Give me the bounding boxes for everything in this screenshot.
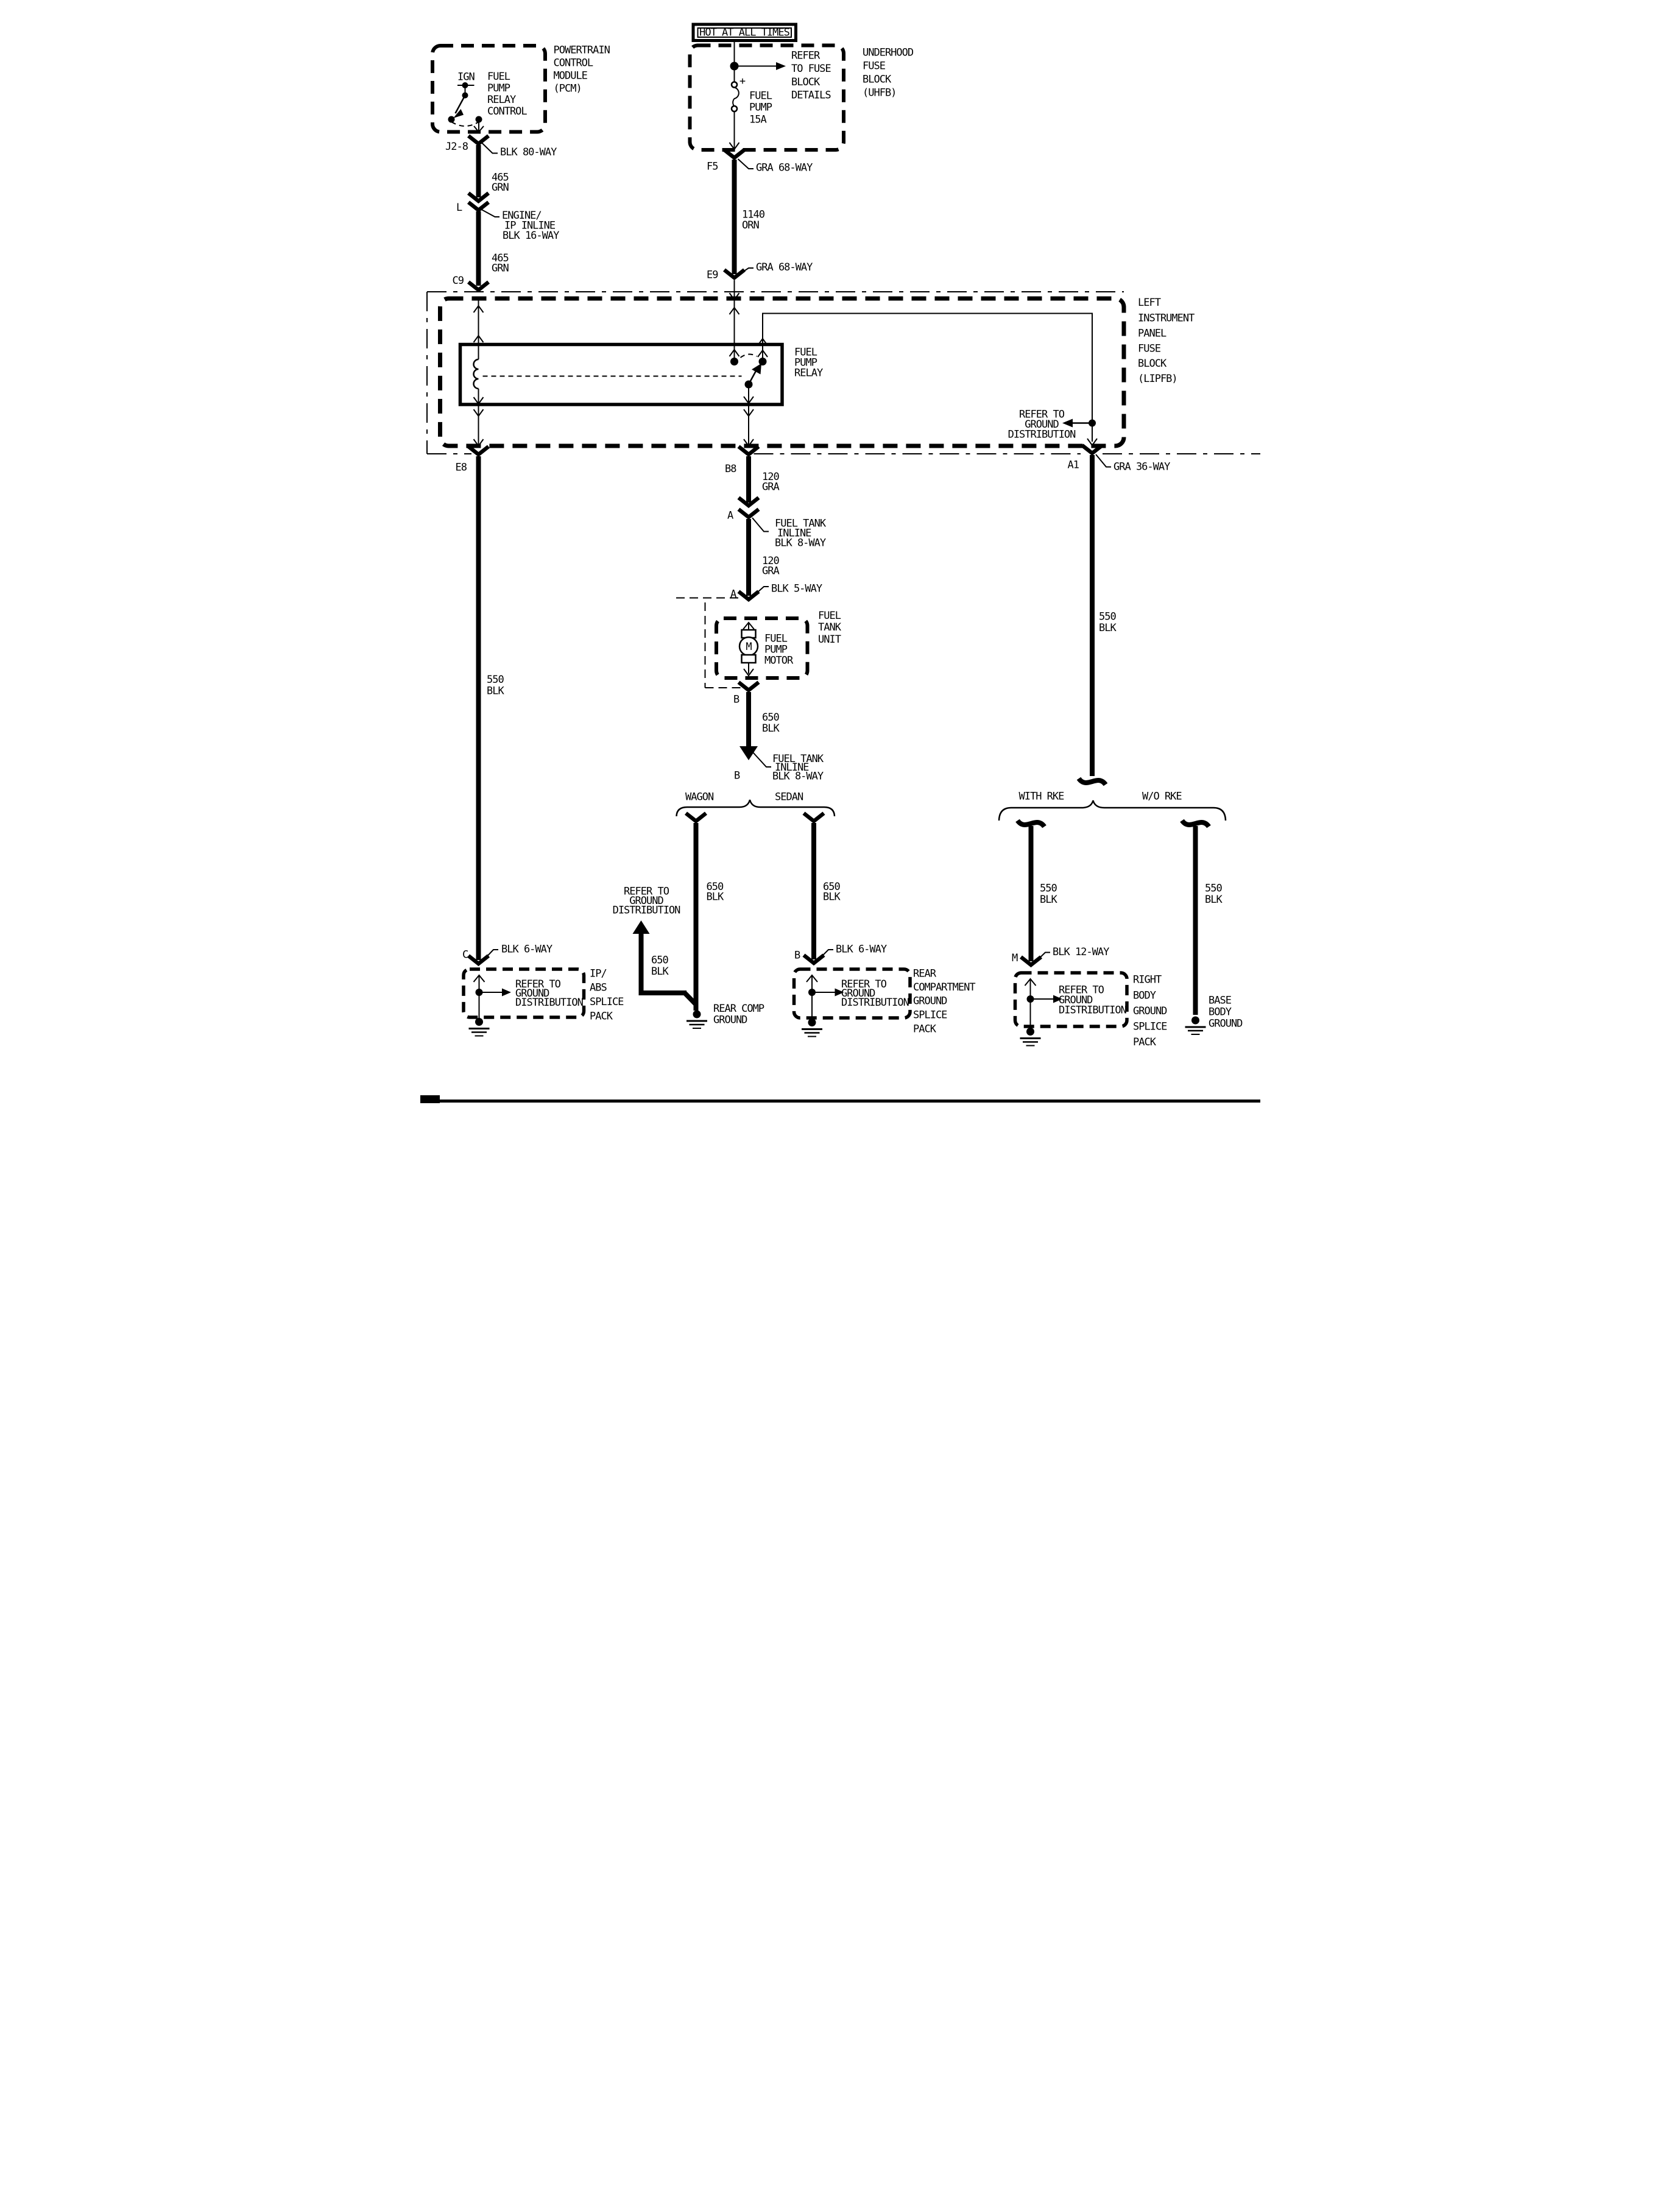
wire-label: GRN [492,263,509,275]
wire-label: ORN [742,219,759,231]
ip-abs-splice-pack: REFER TO GROUND DISTRIBUTION IP/ ABS SPL… [464,968,624,1036]
wiring-diagram-page: HOT AT ALL TIMES POWERTRAIN CONTROL MODU… [420,0,1260,1105]
connector-chevron [803,813,824,821]
wire-label: BLK [651,966,669,978]
splice-pack-label: COMPARTMENT [913,981,975,994]
refer-text: DISTRIBUTION [612,905,680,917]
lipfb-label: FUSE [1138,343,1161,355]
wire-label: BLK [1205,894,1223,906]
motor-label: PUMP [764,644,788,656]
splice-pack-label: BODY [1133,990,1156,1002]
pump-ground-wire: B 650 BLK B FUEL TANK INLINE BLK 8-WAY [733,682,824,783]
sedan-label: SEDAN [775,791,803,803]
pcm-label: MODULE [553,70,587,82]
splice-pack-label: PACK [590,1011,613,1023]
pin-a: A [730,588,736,601]
uhfb-label: BLOCK [863,74,892,86]
sedan-branch: 650 BLK B BLK 6-WAY [794,813,887,963]
fuel-tank-unit: FUEL TANK UNIT M FUEL PUMP MOTOR [716,610,842,678]
wire-label: GRN [492,182,509,194]
wo-rke-branch: 550 BLK BASE BODY GROUND [1182,821,1243,1034]
wire-label: 550 [1099,611,1116,623]
wire-end-arrow-icon [739,746,758,760]
wire-break-icon [1079,778,1106,785]
splice-pack-label: PACK [913,1023,937,1036]
lipfb-label: BLOCK [1138,358,1167,370]
wire-label: BLK [487,685,504,697]
page-edge [420,1095,1260,1103]
inline-label: BLK 16-WAY [503,230,559,242]
connector-chevron [738,682,758,690]
uhfb-block: UNDERHOOD FUSE BLOCK (UHFB) REFER TO FUS… [690,41,913,150]
wagon-label: WAGON [685,791,714,803]
pin-j2-8: J2-8 [445,141,468,153]
splice-pack-label: IP/ [590,968,607,980]
splice-pack-label: ABS [590,982,607,994]
a1-ground-wire: A1 GRA 36-WAY 550 BLK [1067,445,1170,785]
rear-comp-splice-pack: REFER TO GROUND DISTRIBUTION REAR COMPAR… [794,968,975,1037]
pin-e8: E8 [455,462,467,474]
uhfb-refer-text: DETAILS [791,90,831,102]
wire-break-icon [1182,821,1209,827]
pin-c: C [462,949,468,961]
pin-b: B [734,770,740,782]
hot-banner-text: HOT AT ALL TIMES [699,27,790,39]
splice-pack-label: REAR [913,968,937,980]
ground-icon [686,1011,707,1029]
connector-chevron [468,136,489,144]
wire-label: 1140 [742,209,765,221]
connector-label: GRA 36-WAY [1114,461,1170,473]
lipfb-label: LEFT [1138,297,1161,309]
wire-label: GRA [762,481,779,493]
ground-label: BODY [1209,1006,1232,1019]
fuse-label: FUEL [749,90,772,102]
refer-fuse-arrow-icon [776,62,786,70]
wire-label: GRA [762,565,779,577]
wire-label: 650 [762,711,779,724]
lipfb-label: PANEL [1138,328,1166,340]
connector-label: BLK 5-WAY [771,583,822,595]
fuel-tank-unit-box [716,618,808,678]
splice-pack-label: GROUND [913,995,947,1008]
ground-icon [802,1019,822,1037]
lipfb-refer-text: DISTRIBUTION [1008,429,1076,441]
lipfb-block: LEFT INSTRUMENT PANEL FUSE BLOCK (LIPFB)… [440,280,1195,446]
rke-split: WITH RKE W/O RKE [999,791,1226,821]
wagon-branch: 650 BLK REFER TO GROUND DISTRIBUTION 650… [612,813,764,1028]
pin-f5: F5 [707,161,718,173]
relay-label: RELAY [794,367,823,380]
body-style-split: WAGON SEDAN [676,791,835,817]
pcm-control-label: CONTROL [487,105,527,118]
uhfb-refer-text: TO FUSE [791,63,831,75]
tank-label: TANK [818,621,842,634]
splice-pack-label: SPLICE [590,996,624,1008]
fuse-label: PUMP [749,102,772,114]
pcm-control-label: FUEL [487,71,510,83]
connector-label: BLK 6-WAY [501,944,552,956]
refer-text: DISTRIBUTION [515,997,584,1009]
fuse-label: 15A [749,114,766,126]
pcm-label: POWERTRAIN [553,44,610,57]
pin-c9: C9 [452,275,464,287]
pcm-switch-icon [448,82,484,132]
motor-letter: M [746,641,752,653]
section-lines [427,292,1260,688]
wire-break-icon [1017,821,1044,827]
with-rke-label: WITH RKE [1018,791,1064,803]
e8-ground-wire: E8 550 BLK C BLK 6-WAY [455,447,552,964]
lipfb-label: (LIPFB) [1138,373,1177,385]
wire-label: BLK [1099,622,1117,634]
wo-rke-label: W/O RKE [1142,791,1182,803]
with-rke-branch: 550 BLK M BLK 12-WAY REFER TO GROUND DIS… [1012,821,1167,1048]
wire-label: BLK [762,722,780,735]
refer-text: DISTRIBUTION [841,997,909,1009]
uhfb-label: FUSE [863,60,886,72]
wire-label: 550 [487,674,504,686]
connector-chevron [686,813,706,821]
ground-label: REAR COMP [713,1003,764,1015]
pcm-feed-wire: J2-8 BLK 80-WAY 465 GRN L ENGINE/ IP INL… [445,136,559,290]
lipfb-label: INSTRUMENT [1138,312,1195,325]
inline-label: BLK 8-WAY [775,537,826,549]
pcm-control-label: PUMP [487,82,510,94]
connector-label: BLK 12-WAY [1053,946,1109,958]
fuel-pump-wiring-diagram: HOT AT ALL TIMES POWERTRAIN CONTROL MODU… [420,0,1260,1105]
splice-pack-label: PACK [1133,1036,1157,1048]
ground-label: BASE [1209,995,1232,1007]
fuel-pump-feed-circuit: B8 120 GRA A FUEL TANK INLINE BLK 8-WAY … [725,447,827,601]
pin-a1: A1 [1067,459,1079,471]
uhfb-label: UNDERHOOD [863,47,914,59]
splice-pack-label: RIGHT [1133,974,1162,986]
ground-label: GROUND [713,1014,747,1026]
fuse-plus: + [739,76,745,88]
splice-pack-label: SPLICE [1133,1021,1167,1033]
connector-label: BLK 80-WAY [500,146,557,158]
wire-label: BLK [823,891,841,903]
tank-label: FUEL [818,610,841,622]
tank-label: UNIT [818,634,841,646]
motor-label: FUEL [764,633,788,645]
uhfb-refer-text: REFER [791,50,821,62]
pcm-module: POWERTRAIN CONTROL MODULE (PCM) IGN FUEL… [432,44,610,132]
wire-label: BLK [706,891,724,903]
ground-label: GROUND [1209,1018,1243,1030]
pcm-label: (PCM) [553,83,581,95]
pin-a: A [727,510,733,522]
split-brace-icon [999,800,1226,821]
hot-banner: HOT AT ALL TIMES [693,24,796,41]
splice-pack-label: SPLICE [913,1009,947,1022]
refer-text: DISTRIBUTION [1059,1004,1127,1017]
inline-label: BLK 8-WAY [772,771,824,783]
wire-label: 650 [651,955,668,967]
connector-label: GRA 68-WAY [756,162,813,174]
pin-m: M [1012,952,1018,964]
ign-label: IGN [457,71,475,83]
motor-label: MOTOR [764,655,794,667]
wire-label: 550 [1040,883,1057,895]
fuse-icon [732,82,739,112]
pin-b8: B8 [725,463,736,475]
ground-icon [468,1018,489,1036]
wire-label: 550 [1205,883,1222,895]
relay-coil-icon [473,300,483,404]
ground-icon [1020,1028,1040,1046]
pin-b: B [733,694,739,706]
wire-label: BLK [1040,894,1057,906]
ground-icon [1185,1017,1205,1035]
splice-pack-label: GROUND [1133,1005,1167,1017]
pin-e9: E9 [707,269,718,281]
connector-chevron [738,509,758,517]
uhfb-refer-text: BLOCK [791,76,821,88]
refer-ground-up-arrow-icon [632,920,649,934]
refer-ground-arrow-icon [502,989,511,997]
pin-l: L [456,202,462,214]
pin-b: B [794,950,800,962]
connector-label: GRA 68-WAY [756,261,813,274]
uhfb-label: (UHFB) [863,87,896,99]
fuse-feed-wire: F5 GRA 68-WAY 1140 ORN E9 GRA 68-WAY [707,150,813,281]
connector-label: BLK 6-WAY [836,944,887,956]
pcm-label: CONTROL [553,57,593,69]
pcm-control-label: RELAY [487,94,516,106]
